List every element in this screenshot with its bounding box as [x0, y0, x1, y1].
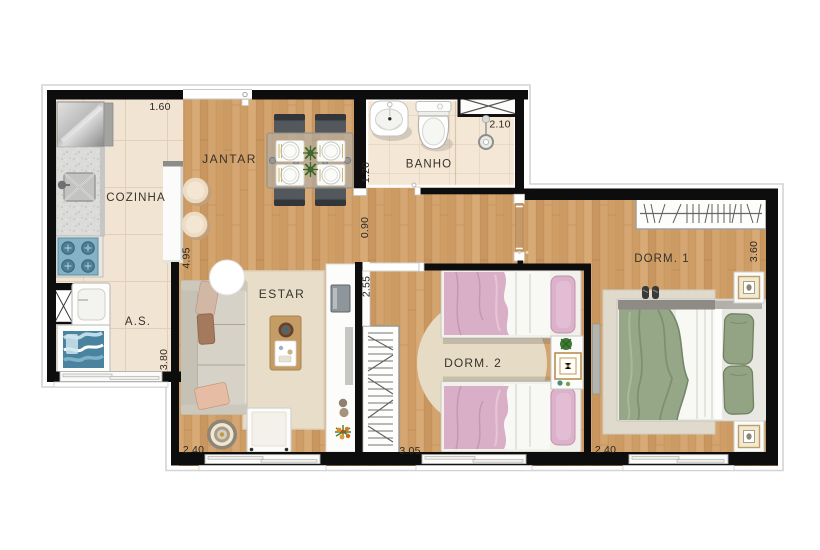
svg-text:0.90: 0.90 [359, 217, 371, 238]
svg-text:1.20: 1.20 [360, 162, 372, 183]
svg-text:DORM. 1: DORM. 1 [634, 253, 690, 265]
svg-text:2.40: 2.40 [595, 444, 616, 456]
svg-text:JANTAR: JANTAR [202, 152, 257, 166]
svg-text:3.80: 3.80 [158, 349, 170, 370]
svg-text:DORM. 2: DORM. 2 [444, 356, 502, 370]
svg-text:3.60: 3.60 [748, 241, 760, 262]
svg-text:2.40: 2.40 [183, 444, 204, 456]
svg-text:ESTAR: ESTAR [259, 287, 306, 301]
svg-text:A.S.: A.S. [125, 316, 151, 328]
svg-text:COZINHA: COZINHA [106, 192, 165, 204]
svg-text:1.60: 1.60 [149, 101, 170, 113]
svg-text:2.55: 2.55 [361, 276, 373, 297]
svg-text:2.10: 2.10 [489, 119, 510, 131]
svg-text:BANHO: BANHO [406, 159, 452, 171]
svg-text:4.95: 4.95 [181, 247, 193, 268]
svg-text:3.05: 3.05 [399, 445, 420, 457]
